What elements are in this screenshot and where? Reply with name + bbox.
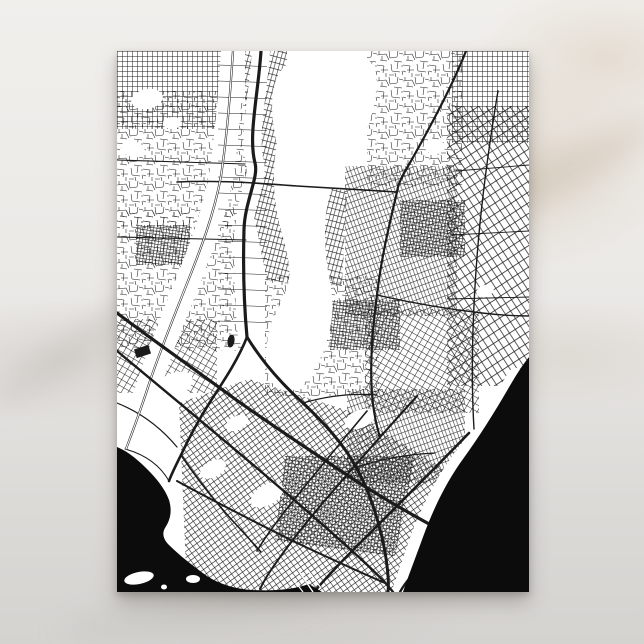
marble-surface [0, 0, 644, 644]
postcard [117, 51, 529, 592]
city-map-print [117, 51, 529, 592]
